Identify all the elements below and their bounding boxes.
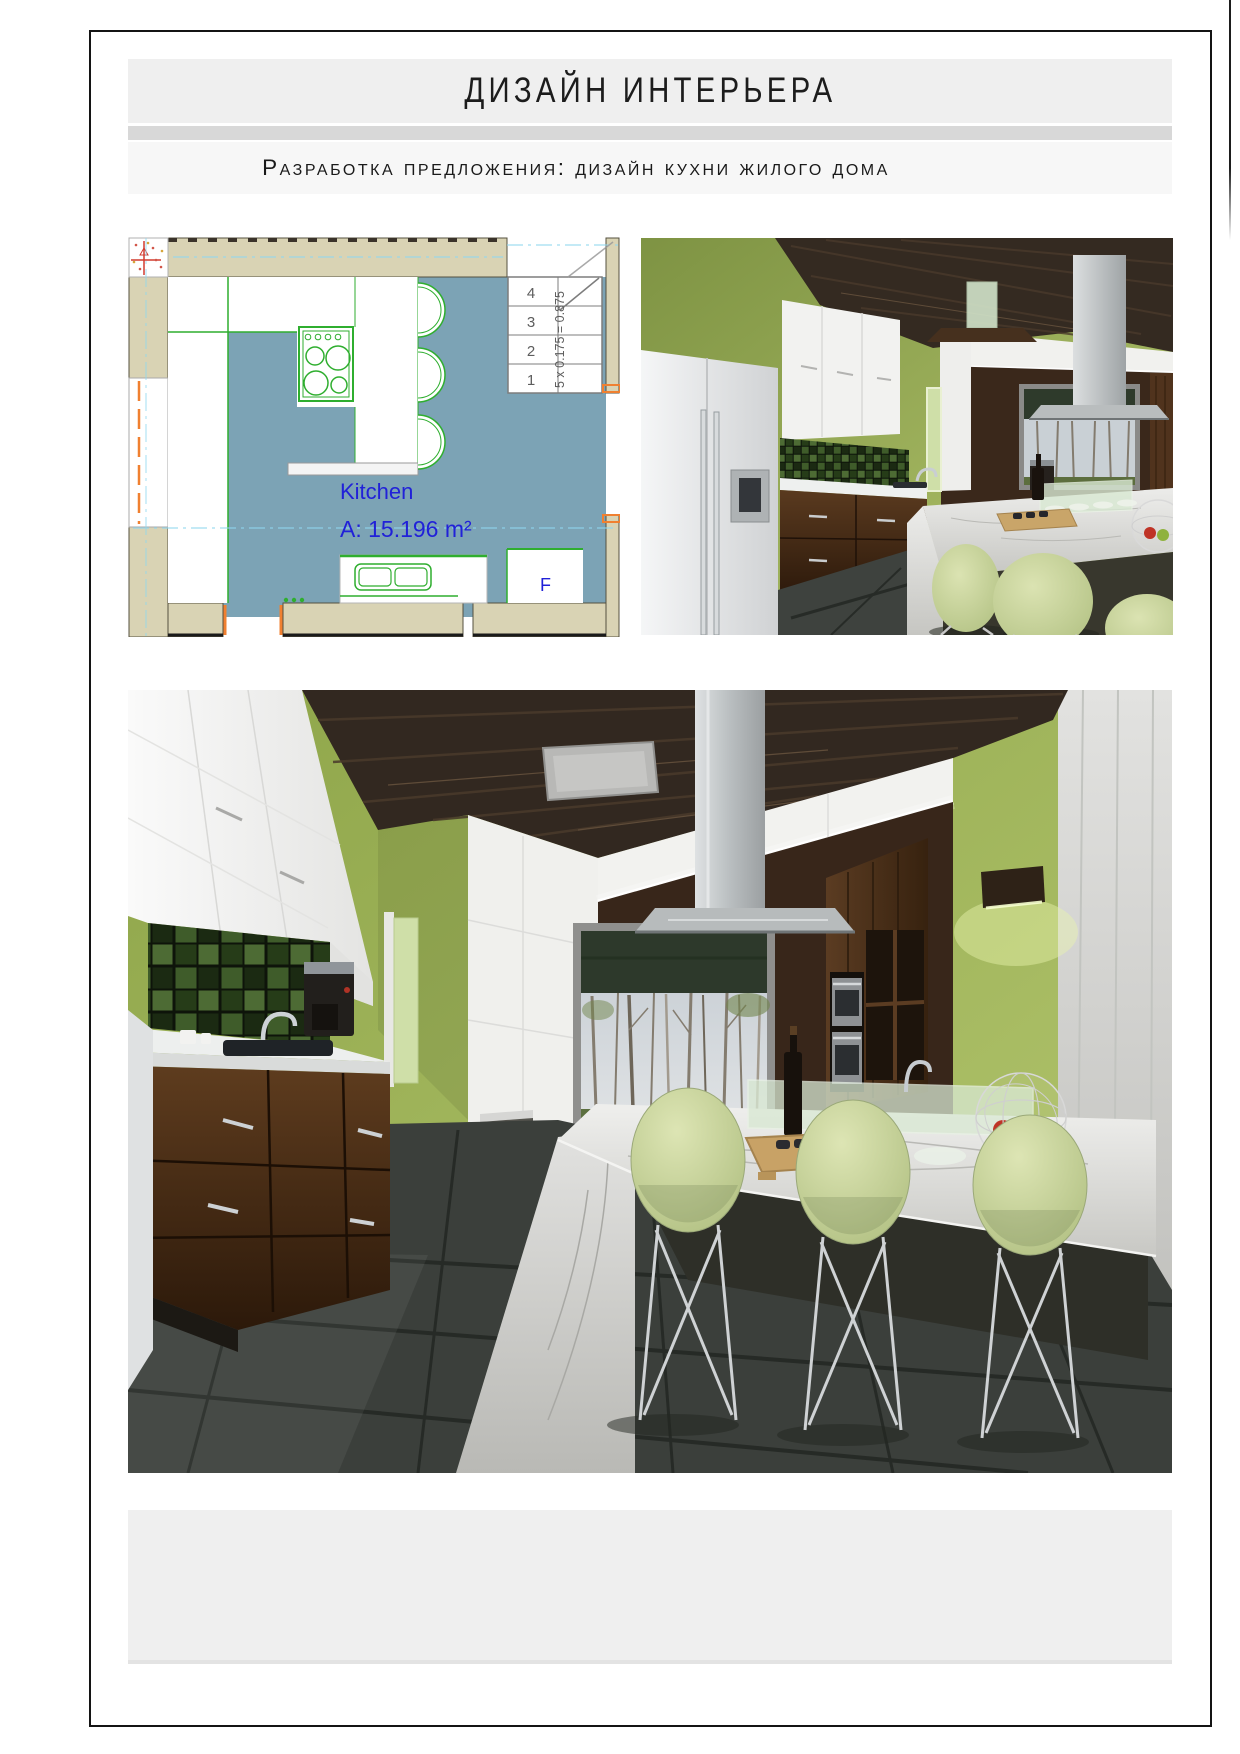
plan-stair-table: 4 3 2 1 5 x 0.175 = 0.875 — [508, 277, 602, 393]
pantry-door — [384, 912, 418, 1087]
stair-step-2: 2 — [527, 343, 535, 360]
document-page: ДИЗАЙН ИНТЕРЬЕРА Разработка предложения:… — [0, 0, 1240, 1754]
floor-plan-figure: F 4 3 2 1 5 x 0.175 = 0.875 — [128, 215, 620, 637]
wood-cabinet-block — [826, 838, 928, 1110]
footer-band-shadow — [128, 1660, 1172, 1664]
water-dispenser — [731, 470, 769, 522]
cabinet-side-panel — [128, 1010, 153, 1390]
plan-fridge-block: F — [507, 548, 583, 603]
double-oven — [830, 972, 864, 1092]
tile-backsplash — [148, 923, 330, 1046]
plan-door-label: F — [540, 575, 551, 595]
ceiling-light — [543, 742, 658, 800]
stair-step-4: 4 — [527, 285, 535, 302]
kitchen-render-main — [128, 690, 1172, 1473]
subtitle-band: Разработка предложения: дизайн кухни жил… — [128, 142, 1172, 194]
header-divider — [128, 126, 1172, 140]
soap-dispenser — [180, 1030, 196, 1044]
plan-area-label: A: 15.196 m² — [340, 516, 472, 542]
kitchen-render-secondary — [641, 238, 1173, 635]
plan-stove — [299, 327, 353, 401]
refrigerator — [641, 350, 778, 635]
coffee-maker — [304, 962, 354, 1036]
stair-formula: 5 x 0.175 = 0.875 — [553, 291, 567, 388]
title-band: ДИЗАЙН ИНТЕРЬЕРА — [128, 59, 1172, 123]
footer-band — [128, 1510, 1172, 1660]
page-title: ДИЗАЙН ИНТЕРЬЕРА — [464, 71, 836, 111]
scan-edge-artifact — [1229, 0, 1231, 240]
plan-grid-marker — [129, 238, 168, 277]
plan-dining-arcs — [418, 283, 445, 469]
upper-cabinets — [782, 300, 900, 440]
wood-cabinet-strip — [1150, 373, 1173, 493]
page-subtitle: Разработка предложения: дизайн кухни жил… — [262, 155, 890, 181]
stair-step-3: 3 — [527, 314, 535, 331]
sink — [223, 1040, 333, 1056]
stair-step-1: 1 — [527, 372, 535, 389]
plan-window-left — [129, 378, 168, 527]
plan-room-label: Kitchen — [340, 479, 413, 504]
